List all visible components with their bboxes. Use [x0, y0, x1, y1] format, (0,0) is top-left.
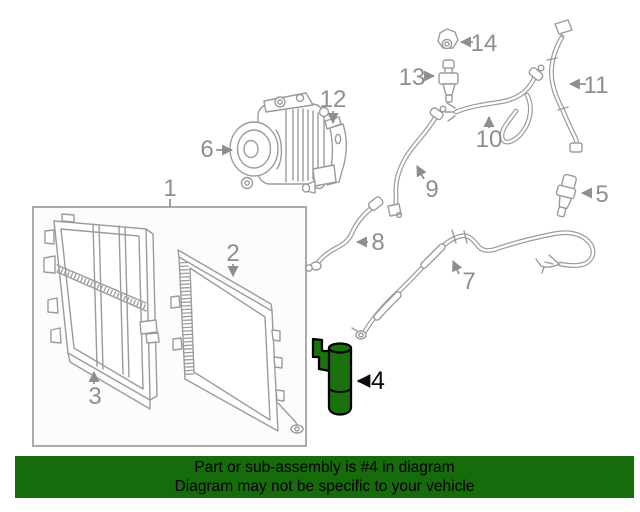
callout-8: 8 — [357, 229, 385, 256]
callout-1: 1 — [163, 175, 176, 207]
callout-7-label: 7 — [462, 268, 475, 295]
parts-diagram-canvas: 1 2 3 4 5 6 7 8 9 10 11 12 — [0, 0, 640, 512]
callout-6: 6 — [200, 136, 232, 163]
callout-9-label: 9 — [425, 176, 438, 203]
callout-10-label: 10 — [476, 126, 503, 153]
callout-1-label: 1 — [163, 175, 176, 202]
callout-11: 11 — [570, 72, 608, 99]
callout-12-label: 12 — [320, 86, 347, 113]
callout-13-label: 13 — [399, 64, 426, 91]
banner-line-2: Diagram may not be specific to your vehi… — [15, 477, 634, 496]
callout-3-label: 3 — [88, 383, 101, 410]
banner-line-1: Part or sub-assembly is #4 in diagram — [15, 458, 634, 477]
callout-14-label: 14 — [471, 30, 498, 57]
callout-7: 7 — [453, 261, 476, 295]
part-11-hose-drawing — [547, 20, 582, 152]
part-14-cap-drawing — [438, 29, 458, 49]
callout-2-label: 2 — [226, 240, 239, 267]
callout-11-label: 11 — [584, 72, 609, 99]
callout-8-label: 8 — [371, 229, 384, 256]
callout-6-label: 6 — [200, 136, 213, 163]
callout-9: 9 — [417, 166, 439, 203]
part-5-sensor-drawing — [551, 173, 579, 218]
callout-14: 14 — [461, 30, 497, 57]
part-4-receiver-drier-highlighted — [313, 339, 351, 415]
callout-10: 10 — [476, 117, 503, 153]
callout-13: 13 — [399, 64, 434, 91]
part-13-valve-drawing — [439, 60, 458, 102]
callout-4-highlighted: 4 — [358, 367, 385, 395]
callout-5-label: 5 — [595, 181, 608, 208]
diagram-artwork: 1 2 3 4 5 6 7 8 9 10 11 12 — [0, 0, 640, 512]
notice-banner: Part or sub-assembly is #4 in diagram Di… — [15, 456, 634, 498]
callout-5: 5 — [582, 181, 609, 208]
callout-4-label: 4 — [371, 367, 385, 395]
